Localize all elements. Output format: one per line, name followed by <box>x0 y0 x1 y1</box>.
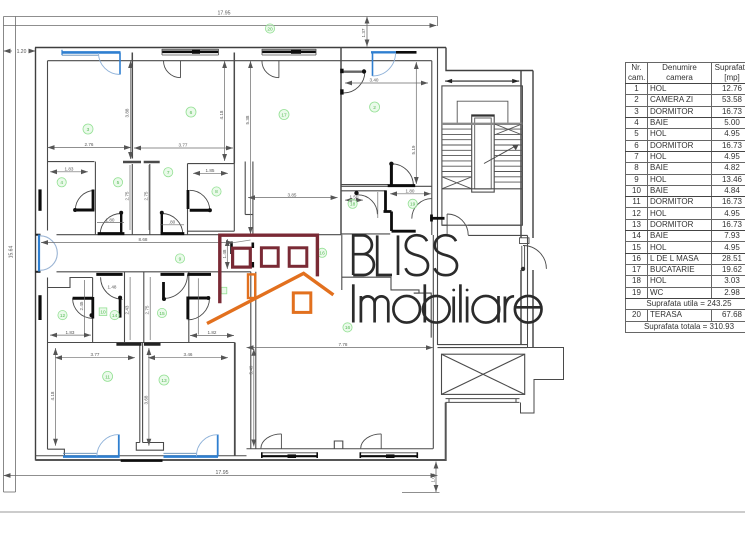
svg-text:18: 18 <box>350 202 356 208</box>
svg-text:1.82: 1.82 <box>208 330 217 335</box>
svg-text:3.88: 3.88 <box>125 108 130 117</box>
svg-text:3.85: 3.85 <box>288 192 297 197</box>
svg-text:1.50: 1.50 <box>350 195 359 200</box>
svg-text:1.03: 1.03 <box>430 473 435 482</box>
svg-text:13: 13 <box>161 378 167 384</box>
svg-text:16: 16 <box>319 251 325 257</box>
svg-text:3.77: 3.77 <box>91 352 100 357</box>
svg-text:16: 16 <box>345 325 351 331</box>
svg-text:17: 17 <box>281 113 287 119</box>
svg-text:1.80: 1.80 <box>406 188 415 193</box>
svg-text:2.75: 2.75 <box>125 191 130 200</box>
svg-text:3.40: 3.40 <box>370 78 379 83</box>
svg-text:2.75: 2.75 <box>144 191 149 200</box>
svg-text:1.83: 1.83 <box>65 167 74 172</box>
svg-text:4: 4 <box>60 180 63 186</box>
svg-text:1.83: 1.83 <box>66 330 75 335</box>
svg-text:5.49: 5.49 <box>248 365 253 374</box>
svg-text:2.76: 2.76 <box>85 142 94 147</box>
svg-text:2.75: 2.75 <box>145 305 150 314</box>
svg-text:1.37: 1.37 <box>361 28 366 37</box>
svg-text:10: 10 <box>100 310 106 316</box>
svg-text:1.80: 1.80 <box>106 217 115 222</box>
svg-text:2.45: 2.45 <box>79 301 84 310</box>
svg-text:.80: .80 <box>169 220 176 225</box>
svg-text:19: 19 <box>410 202 416 208</box>
svg-text:20: 20 <box>267 26 273 32</box>
svg-text:14: 14 <box>112 313 118 319</box>
svg-text:7.78: 7.78 <box>339 342 348 347</box>
svg-text:15: 15 <box>159 311 165 317</box>
svg-text:8: 8 <box>215 189 218 195</box>
svg-text:7: 7 <box>167 170 170 176</box>
svg-text:1.20: 1.20 <box>17 49 27 55</box>
svg-text:11: 11 <box>105 374 110 380</box>
svg-text:5: 5 <box>117 180 120 186</box>
svg-text:3.68: 3.68 <box>143 395 148 404</box>
svg-text:3.46: 3.46 <box>184 352 193 357</box>
svg-text:3: 3 <box>87 127 90 133</box>
svg-text:8.68: 8.68 <box>139 237 148 242</box>
svg-text:5.19: 5.19 <box>411 145 416 154</box>
svg-text:15.64: 15.64 <box>9 246 15 259</box>
svg-text:1.48: 1.48 <box>108 285 117 290</box>
svg-text:17.95: 17.95 <box>218 11 231 17</box>
svg-text:3.77: 3.77 <box>179 143 188 148</box>
svg-text:2.43: 2.43 <box>125 305 130 314</box>
svg-text:1.48: 1.48 <box>222 249 227 258</box>
svg-text:17.95: 17.95 <box>216 470 229 476</box>
svg-text:1.85: 1.85 <box>206 168 215 173</box>
svg-text:9: 9 <box>179 256 182 262</box>
svg-text:5.38: 5.38 <box>245 115 250 124</box>
svg-text:2: 2 <box>373 105 376 111</box>
svg-text:4.18: 4.18 <box>219 110 224 119</box>
svg-text:4.18: 4.18 <box>50 391 55 400</box>
svg-text:6: 6 <box>190 110 193 116</box>
svg-text:12: 12 <box>60 313 66 319</box>
